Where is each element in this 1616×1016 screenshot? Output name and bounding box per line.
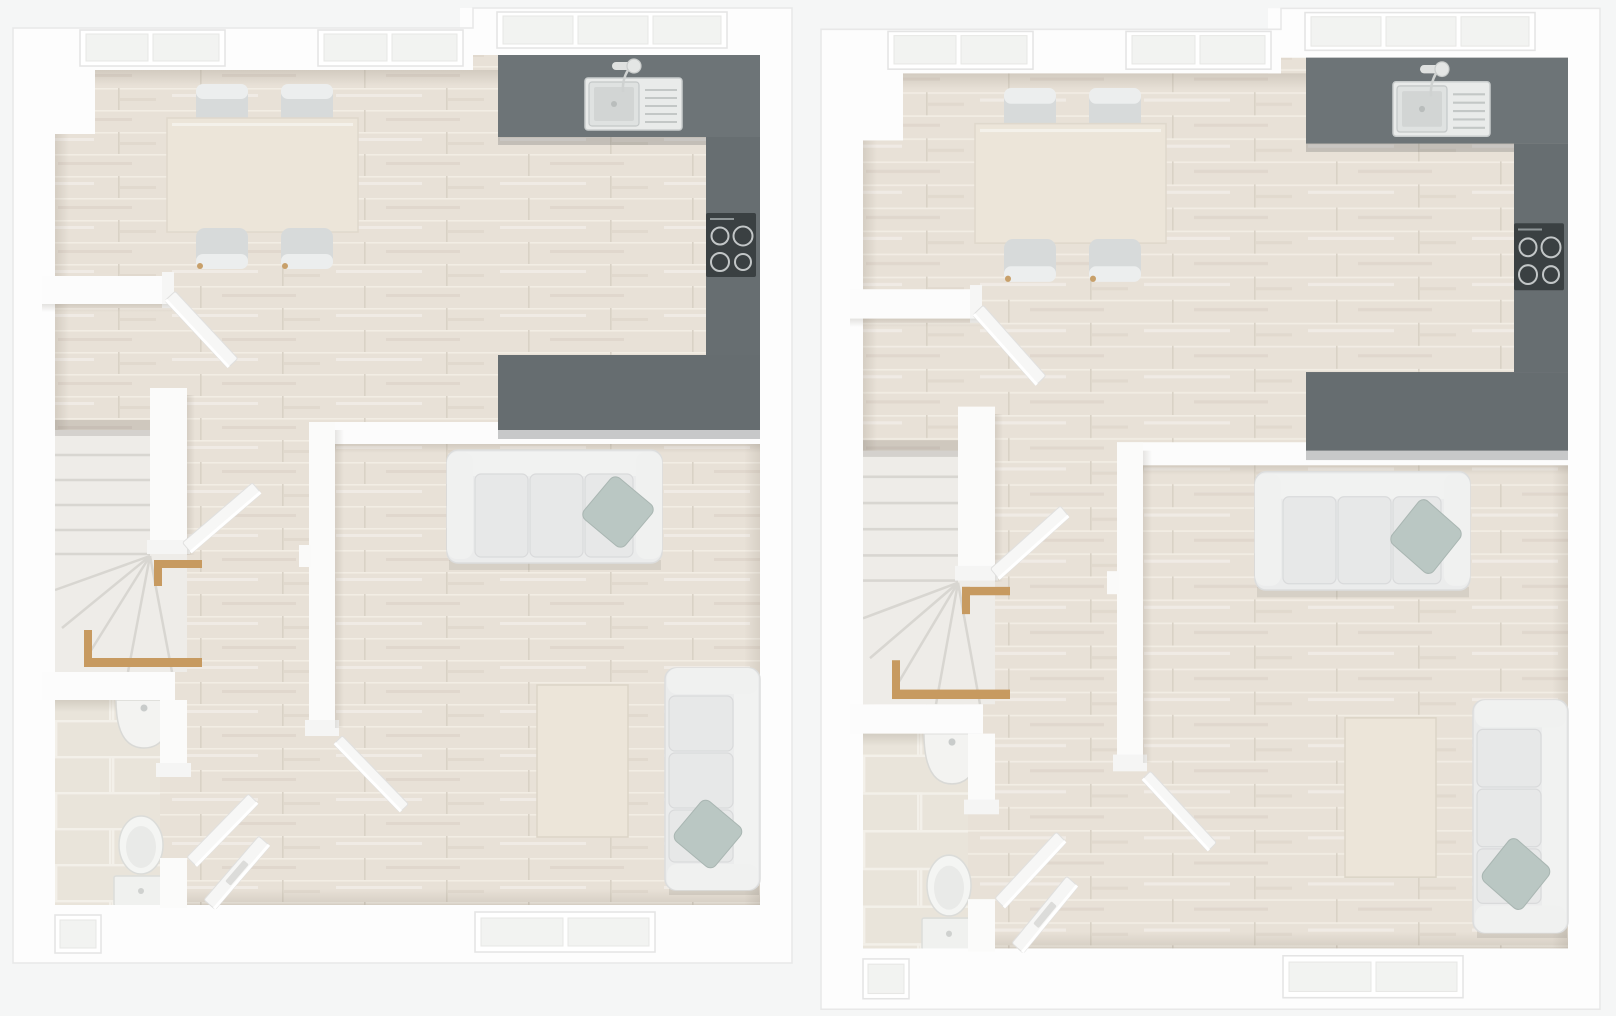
house-left bbox=[13, 8, 792, 963]
floor-plan-render: Top-down 3D ground-floor plan render of … bbox=[0, 0, 1616, 1016]
house-right bbox=[821, 8, 1600, 1009]
floor-plan-svg: Top-down 3D ground-floor plan render of … bbox=[0, 0, 1616, 1016]
